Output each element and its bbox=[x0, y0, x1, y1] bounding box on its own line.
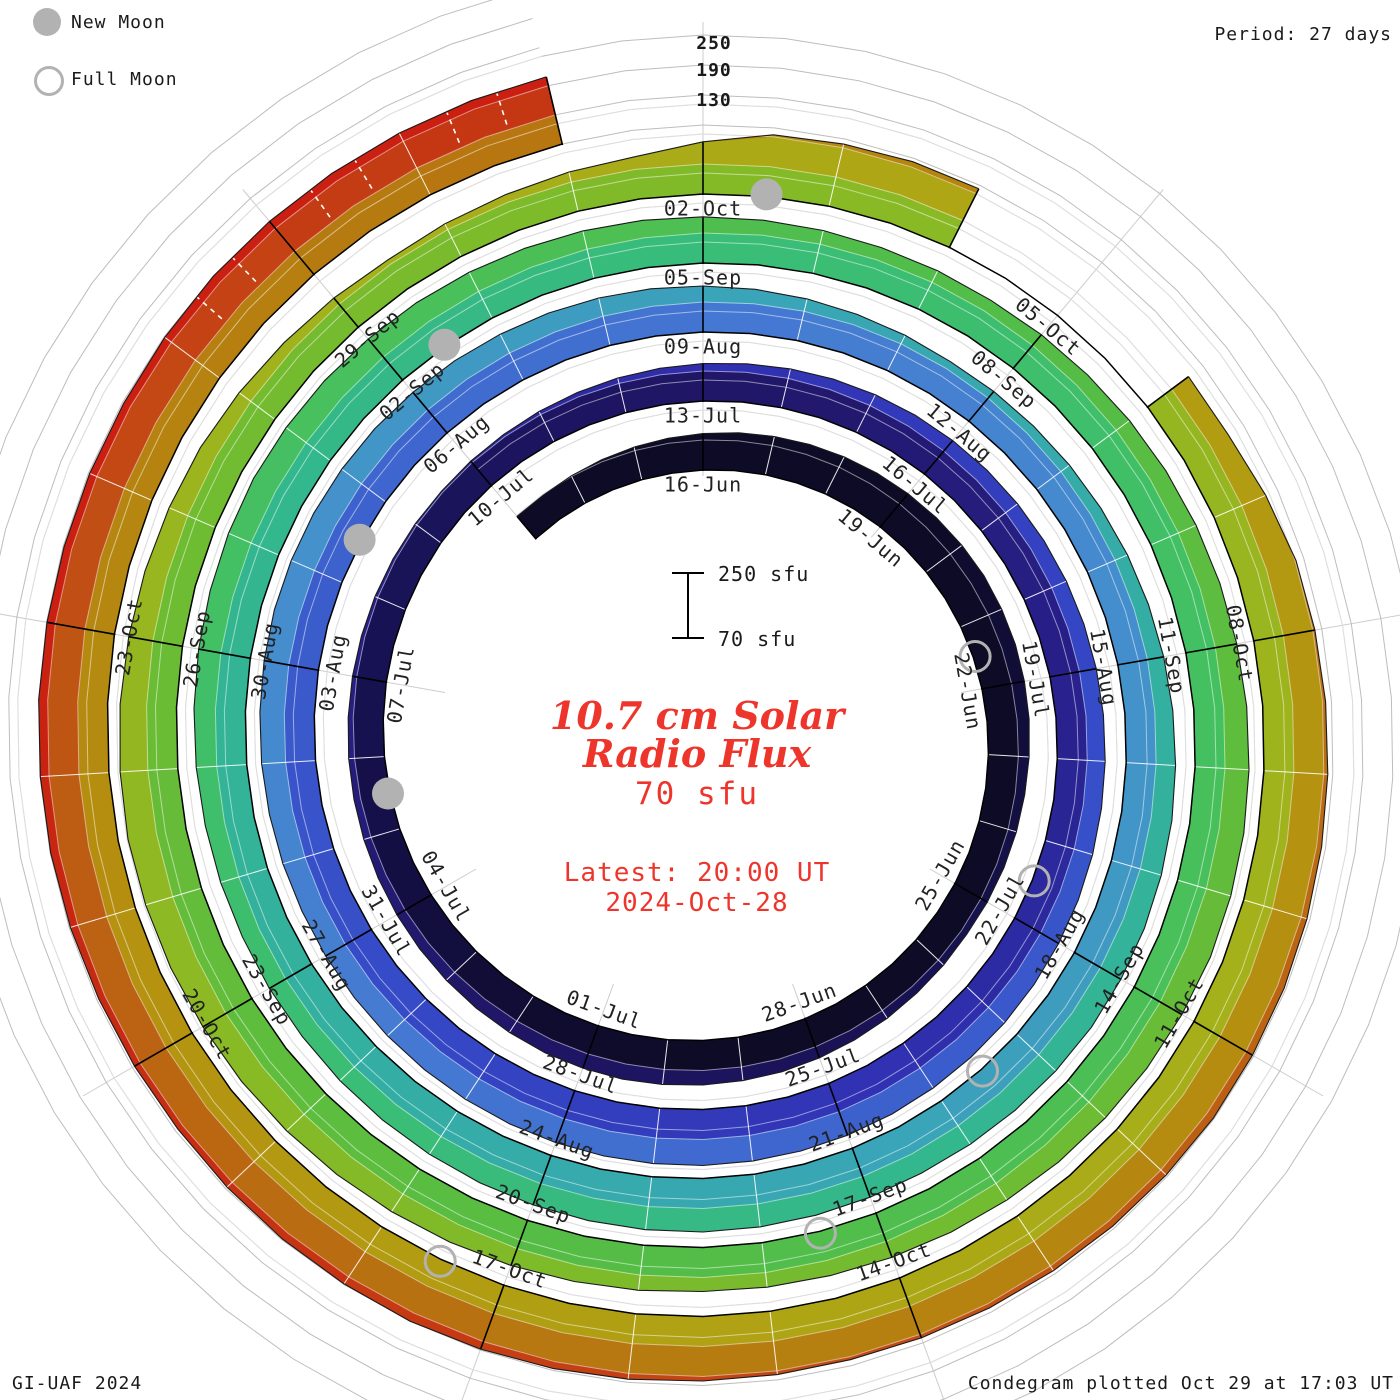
date-label: 02-Oct bbox=[664, 197, 742, 221]
date-label: 05-Sep bbox=[664, 266, 742, 290]
date-label: 16-Jun bbox=[664, 473, 742, 497]
scale-bar-line bbox=[687, 573, 689, 639]
date-label: 13-Jul bbox=[664, 404, 742, 428]
new-moon-legend-label: New Moon bbox=[71, 12, 166, 33]
credit-text: GI-UAF 2024 bbox=[12, 1373, 142, 1394]
scale-bar-top-label: 250 sfu bbox=[718, 562, 809, 586]
radial-tick-130: 130 bbox=[0, 90, 1400, 111]
scale-bar-bottom-cap bbox=[672, 637, 704, 639]
chart-subtitle-value: 70 sfu bbox=[0, 776, 1394, 812]
scale-bar-bottom-label: 70 sfu bbox=[718, 627, 796, 651]
new-moon-marker bbox=[428, 329, 460, 361]
plotted-timestamp: Condegram plotted Oct 29 at 17:03 UT bbox=[968, 1373, 1394, 1394]
new-moon-marker bbox=[751, 178, 783, 210]
new-moon-icon bbox=[33, 8, 61, 36]
chart-title-line2: Radio Flux bbox=[0, 731, 1394, 776]
radial-tick-250: 250 bbox=[0, 33, 1400, 54]
latest-time-label: Latest: 20:00 UT bbox=[0, 858, 1394, 888]
radial-tick-190: 190 bbox=[0, 60, 1400, 81]
latest-date-label: 2024-Oct-28 bbox=[0, 888, 1394, 918]
date-label: 09-Aug bbox=[664, 335, 742, 359]
scale-bar-top-cap bbox=[672, 572, 704, 574]
condegram-screenshot: 16-Jun19-Jun22-Jun25-Jun28-Jun01-Jul04-J… bbox=[0, 0, 1400, 1400]
new-moon-marker bbox=[344, 524, 376, 556]
